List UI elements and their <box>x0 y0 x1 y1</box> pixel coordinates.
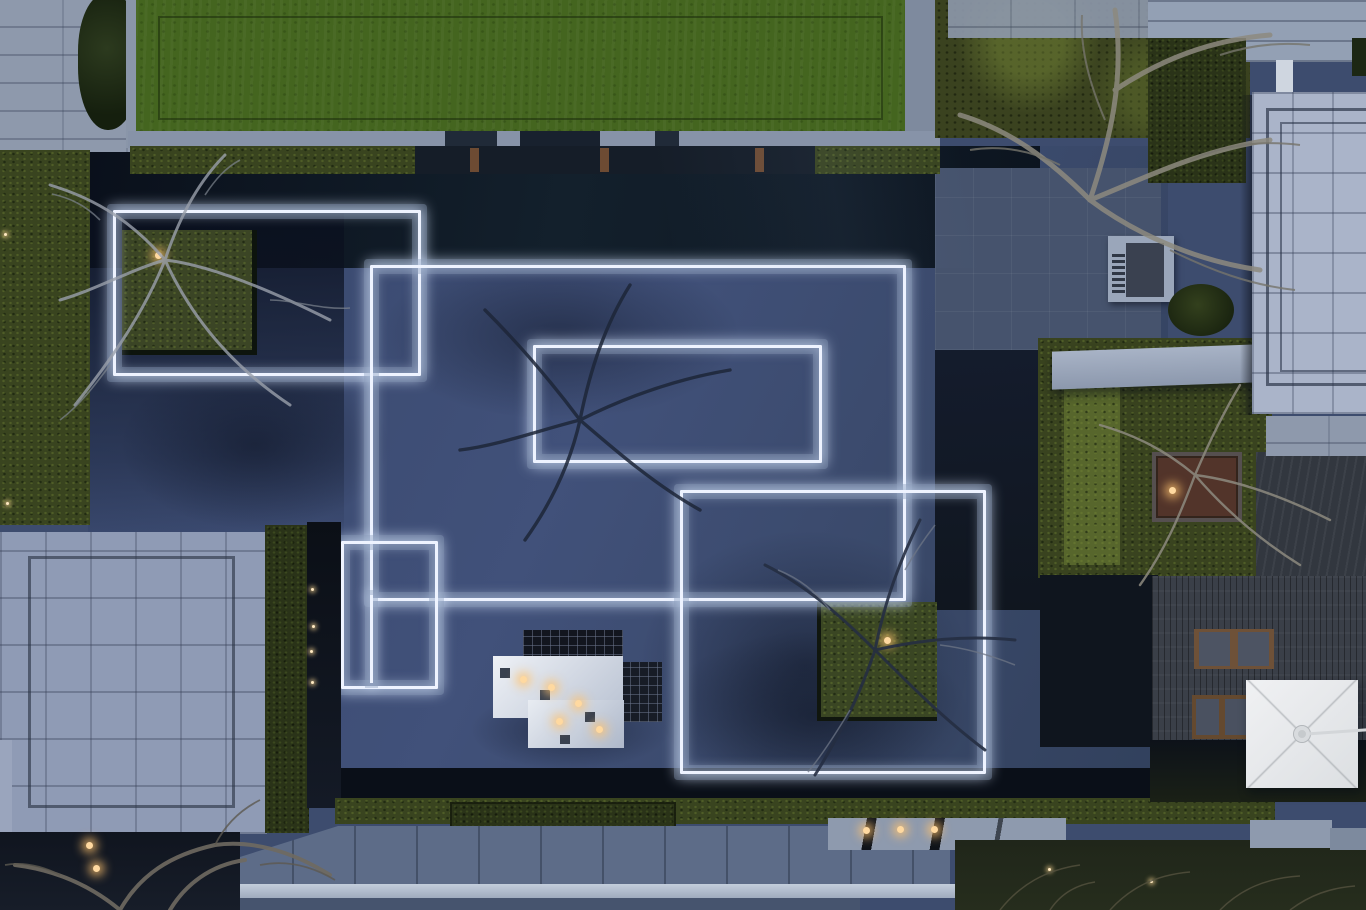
aerial-courtyard-photo <box>0 0 1366 910</box>
bottom-left-trees <box>0 770 380 910</box>
white-parasol <box>1246 680 1358 788</box>
lawn-roof <box>136 0 905 138</box>
pavilion-light <box>548 684 555 691</box>
hedge-flower <box>4 233 7 236</box>
mirror-cube-bright <box>528 700 624 748</box>
path-light <box>863 827 870 834</box>
mirror-cell-dark <box>500 668 510 678</box>
light-line-extension <box>370 595 373 683</box>
lawn-inner-seam <box>158 16 883 120</box>
light-rectangle-small <box>341 541 438 689</box>
pond-west-of-deck <box>1040 575 1158 747</box>
facade-light <box>312 625 315 628</box>
dark-glass-strip <box>307 522 341 808</box>
facade-light <box>311 681 314 684</box>
bottom-right-twigs <box>960 840 1366 910</box>
east-garden-tree <box>1080 380 1366 600</box>
mirror-cell-dark <box>585 712 595 722</box>
chair-cushion <box>1238 632 1269 666</box>
facade-light <box>311 588 314 591</box>
parasol-hub <box>1294 726 1310 742</box>
pavilion-light <box>520 676 527 683</box>
pavilion-light <box>575 700 582 707</box>
water-sheen <box>88 146 1040 268</box>
chair-cushion <box>1196 699 1219 735</box>
hedge-flower <box>6 502 9 505</box>
pavilion-light <box>556 718 563 725</box>
chair-cushion <box>1199 632 1230 666</box>
chair-cushion <box>1225 699 1248 735</box>
lawn-left-coping <box>126 0 136 148</box>
lounge-chair-pair <box>1194 629 1274 669</box>
pavilion-light <box>596 726 603 733</box>
parasol-arm <box>1310 728 1366 736</box>
mirror-cell-dark <box>560 735 570 744</box>
mirror-cell-dark <box>540 690 550 700</box>
courtyard-shadow-tree <box>430 250 770 550</box>
path-light <box>897 826 904 833</box>
path-light <box>931 826 938 833</box>
facade-light <box>310 650 313 653</box>
lounge-chair-pair <box>1192 695 1252 739</box>
right-planter-tree <box>730 500 1030 790</box>
